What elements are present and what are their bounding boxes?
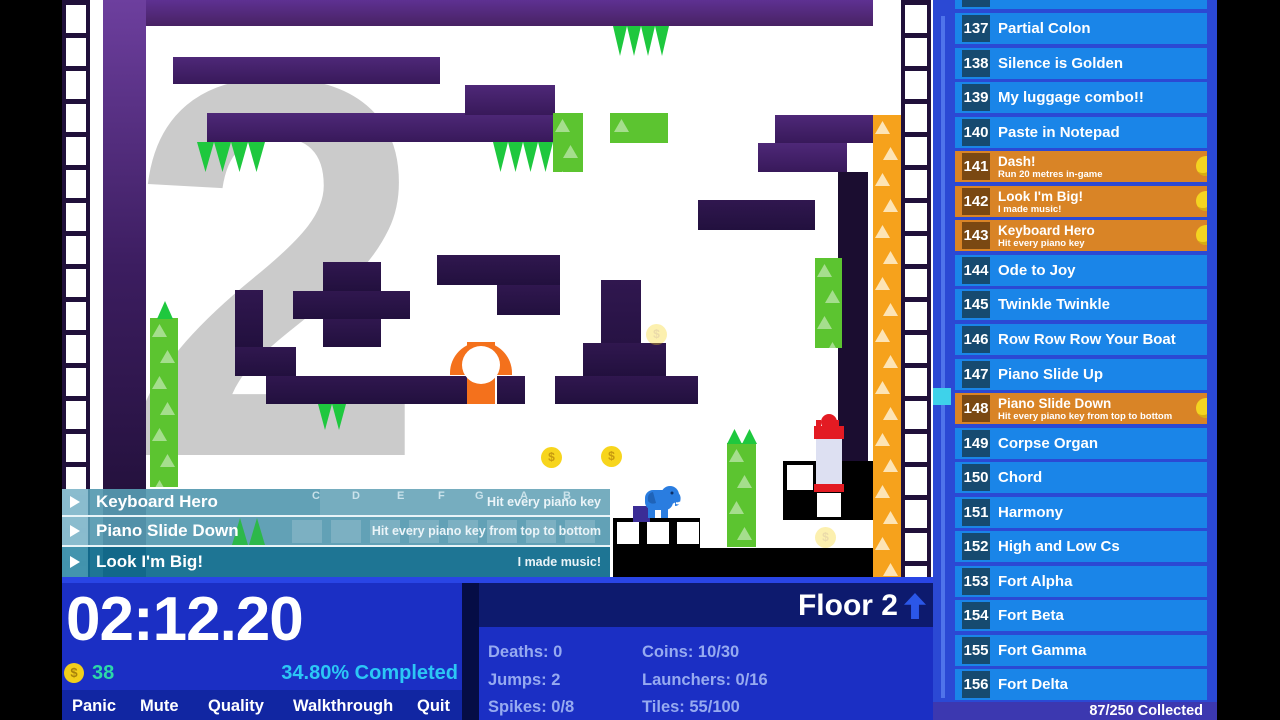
achievement-row-137[interactable]: 137Partial Colon — [955, 13, 1207, 44]
green-column — [815, 258, 842, 348]
platform — [583, 343, 666, 376]
pattern-triangle — [883, 563, 898, 576]
achievement-number: 153 — [962, 568, 990, 595]
menu-walkthrough[interactable]: Walkthrough — [293, 697, 393, 716]
decor: Row Row Row Your Boat — [998, 324, 1193, 355]
coin: $ — [815, 527, 836, 548]
stat-jumps: Jumps: 2 — [488, 671, 560, 690]
pattern-triangle — [875, 121, 890, 134]
achievement-number: 142 — [962, 188, 990, 215]
achievement-row-153[interactable]: 153Fort Alpha — [955, 566, 1207, 597]
play-icon — [70, 525, 80, 537]
pattern-triangle — [875, 173, 890, 186]
pattern-triangle — [875, 537, 890, 550]
pattern-triangle — [883, 147, 898, 160]
achievement-title: Harmony — [998, 497, 1193, 528]
launcher-body — [816, 439, 842, 486]
tile — [677, 522, 699, 544]
toast-look-im-big: Look I'm Big! I made music! — [62, 547, 610, 577]
tile — [647, 522, 669, 544]
launcher-cap — [814, 426, 844, 439]
pattern-triangle — [160, 350, 175, 363]
platform — [838, 172, 868, 461]
completion-percent: 34.80% Completed — [180, 662, 458, 685]
pattern-triangle — [883, 199, 898, 212]
achievement-title: Piano Slide Up — [998, 359, 1193, 390]
achievement-number: 141 — [962, 153, 990, 180]
achievement-title: Corpse Organ — [998, 428, 1193, 459]
piano-letter: C — [312, 490, 320, 502]
platform — [437, 255, 560, 285]
decor: Piano Slide DownHit every piano key from… — [998, 393, 1193, 424]
achievement-number: 148 — [962, 395, 990, 422]
achievement-row-154[interactable]: 154Fort Beta — [955, 600, 1207, 631]
decor — [331, 520, 361, 543]
piano-letter: D — [352, 490, 360, 502]
green-column — [727, 443, 756, 547]
pattern-triangle — [555, 171, 570, 172]
floor — [613, 548, 873, 578]
achievement-number: 145 — [962, 291, 990, 318]
toast-icon-box — [62, 489, 88, 515]
menu-mute[interactable]: Mute — [140, 697, 179, 716]
piano-letter: B — [563, 490, 571, 502]
achievement-title: Fort Gamma — [998, 635, 1193, 666]
decor — [661, 506, 668, 518]
pattern-triangle — [875, 225, 890, 238]
pattern-triangle — [555, 119, 570, 132]
achievement-row-145[interactable]: 145Twinkle Twinkle — [955, 289, 1207, 320]
achievement-subtitle: Run 20 metres in-game — [998, 170, 1193, 180]
achievement-subtitle: Hit every piano key from top to bottom — [998, 412, 1193, 422]
achievement-number: 150 — [962, 464, 990, 491]
decor: Fort Beta — [998, 600, 1193, 631]
achievement-number: 156 — [962, 671, 990, 698]
platform — [173, 57, 440, 84]
achievement-row-155[interactable]: 155Fort Gamma — [955, 635, 1207, 666]
orange-column — [873, 115, 901, 578]
decor — [671, 492, 674, 495]
pattern-triangle — [152, 376, 167, 389]
pattern-triangle — [152, 324, 167, 337]
tile — [617, 522, 639, 544]
play-icon — [70, 496, 80, 508]
achievement-title: Row Row Row Your Boat — [998, 324, 1193, 355]
piano-letter: A — [520, 490, 528, 502]
achievement-number: 151 — [962, 499, 990, 526]
achievement-title: Ode to Joy — [998, 255, 1193, 286]
film-strip-right — [901, 0, 931, 578]
stat-launchers: Launchers: 0/16 — [642, 671, 768, 690]
coin: $ — [541, 447, 562, 468]
achievement-row-141[interactable]: 141Dash!Run 20 metres in-game — [955, 151, 1207, 182]
platform — [235, 290, 263, 347]
achievement-title: Dash! — [998, 151, 1193, 170]
platform — [293, 291, 410, 319]
pattern-triangle — [883, 459, 898, 472]
pattern-triangle — [563, 145, 578, 158]
coin: $ — [601, 446, 622, 467]
achievement-title: Chord — [998, 462, 1193, 493]
platform — [323, 319, 381, 347]
green-block — [610, 113, 668, 143]
platform — [465, 85, 555, 115]
pattern-triangle — [737, 527, 752, 540]
game-screen: 2 — [0, 0, 1280, 720]
achievement-number: 147 — [962, 361, 990, 388]
toast-icon-box — [62, 547, 88, 577]
elephant — [641, 484, 685, 520]
pattern-triangle — [875, 433, 890, 446]
stat-coins: Coins: 10/30 — [642, 643, 739, 662]
achievement-row-150[interactable]: 150Chord — [955, 462, 1207, 493]
achievement-title: High and Low Cs — [998, 531, 1193, 562]
achievement-number: 154 — [962, 602, 990, 629]
achievement-number: 137 — [962, 15, 990, 42]
pattern-triangle — [883, 355, 898, 368]
coin-icon — [1196, 398, 1207, 418]
achievement-number: 144 — [962, 257, 990, 284]
toast-title: Look I'm Big! — [96, 547, 203, 577]
achievement-row-146[interactable]: 146Row Row Row Your Boat — [955, 324, 1207, 355]
stat-tiles: Tiles: 55/100 — [642, 698, 740, 717]
pattern-triangle — [875, 381, 890, 394]
achievement-row-148[interactable]: 148Piano Slide DownHit every piano key f… — [955, 393, 1207, 424]
achievement-title: Look I'm Big! — [998, 186, 1193, 205]
achievement-number: 149 — [962, 430, 990, 457]
shrine-hole — [462, 346, 500, 384]
coin-icon: $ — [64, 663, 84, 683]
decor: Corpse Organ — [998, 428, 1193, 459]
achievement-row-147[interactable]: 147Piano Slide Up — [955, 359, 1207, 390]
piano-letter: G — [475, 490, 484, 502]
toast-piano-slide-down: Piano Slide Down Hit every piano key fro… — [62, 517, 610, 547]
green-block — [553, 113, 583, 172]
toast-note: I made music! — [518, 547, 601, 577]
achievement-number: 140 — [962, 119, 990, 146]
pattern-triangle — [883, 251, 898, 264]
left-letterbox — [0, 0, 62, 720]
decor: Ode to Joy — [998, 255, 1193, 286]
achievement-number: 138 — [962, 50, 990, 77]
pattern-triangle — [875, 277, 890, 290]
sidebar-scrollbar[interactable] — [941, 16, 945, 698]
pattern-triangle — [160, 402, 175, 415]
coin: $ — [646, 324, 667, 345]
platform — [207, 113, 555, 142]
menu-quit[interactable]: Quit — [417, 697, 450, 716]
achievement-row-144[interactable]: 144Ode to Joy — [955, 255, 1207, 286]
menu-quality[interactable]: Quality — [208, 697, 264, 716]
achievement-row-151[interactable]: 151Harmony — [955, 497, 1207, 528]
tile — [787, 465, 813, 490]
pattern-triangle — [160, 454, 175, 467]
platform — [555, 376, 698, 404]
pattern-triangle — [152, 480, 167, 487]
pattern-triangle — [883, 511, 898, 524]
decor: Fort Delta — [998, 669, 1193, 700]
achievement-row-partial[interactable] — [955, 0, 1207, 9]
pattern-triangle — [875, 329, 890, 342]
achievement-title: My luggage combo!! — [998, 82, 1193, 113]
decor — [648, 506, 655, 518]
pattern-triangle — [883, 407, 898, 420]
pattern-triangle — [152, 428, 167, 441]
decor: Paste in Notepad — [998, 117, 1193, 148]
right-letterbox — [1217, 0, 1280, 720]
toast-title: Piano Slide Down — [96, 517, 239, 545]
achievement-row-149[interactable]: 149Corpse Organ — [955, 428, 1207, 459]
stat-deaths: Deaths: 0 — [488, 643, 562, 662]
achievement-title: Fort Delta — [998, 669, 1193, 700]
achievement-title: Keyboard Hero — [998, 220, 1193, 239]
achievement-row-156[interactable]: 156Fort Delta — [955, 669, 1207, 700]
decor: Piano Slide Up — [998, 359, 1193, 390]
stat-spikes: Spikes: 0/8 — [488, 698, 574, 717]
achievement-row-140[interactable]: 140Paste in Notepad — [955, 117, 1207, 148]
toast-keyboard-hero: Keyboard Hero Hit every piano key CDEFGA… — [62, 489, 610, 517]
piano-letter: F — [438, 490, 445, 502]
decor: Silence is Golden — [998, 48, 1193, 79]
toast-icon-box — [62, 517, 88, 545]
decor: My luggage combo!! — [998, 82, 1193, 113]
decor — [962, 0, 990, 7]
decor — [292, 520, 322, 543]
scroll-marker[interactable] — [933, 388, 951, 405]
achievement-number: 143 — [962, 222, 990, 249]
decor: Fort Alpha — [998, 566, 1193, 597]
decor: Fort Gamma — [998, 635, 1193, 666]
menu-panic[interactable]: Panic — [72, 697, 116, 716]
coin-icon — [1196, 225, 1207, 245]
achievement-title: Partial Colon — [998, 13, 1193, 44]
decor: Dash!Run 20 metres in-game — [998, 151, 1193, 182]
floor-label: Floor 2 — [640, 589, 898, 623]
coin-count: 38 — [92, 662, 114, 685]
pattern-triangle — [729, 449, 744, 462]
coin-icon — [1196, 156, 1207, 176]
achievement-title: Fort Beta — [998, 600, 1193, 631]
tile — [817, 493, 841, 517]
pattern-triangle — [875, 485, 890, 498]
achievement-subtitle: I made music! — [998, 205, 1193, 215]
pattern-triangle — [883, 303, 898, 316]
achievement-number: 146 — [962, 326, 990, 353]
decor: Twinkle Twinkle — [998, 289, 1193, 320]
platform — [266, 376, 448, 404]
decor: High and Low Cs — [998, 531, 1193, 562]
achievement-row-139[interactable]: 139My luggage combo!! — [955, 82, 1207, 113]
platform — [497, 376, 525, 404]
green-column — [150, 318, 178, 487]
achievement-title: Twinkle Twinkle — [998, 289, 1193, 320]
pattern-triangle — [825, 342, 840, 348]
decor: Partial Colon — [998, 13, 1193, 44]
platform — [758, 143, 847, 172]
achievement-number: 155 — [962, 637, 990, 664]
pattern-triangle — [729, 501, 744, 514]
achievement-list: 137Partial Colon138Silence is Golden139M… — [955, 0, 1207, 702]
pattern-triangle — [817, 316, 832, 329]
decor — [462, 583, 479, 720]
piano-letter: E — [397, 490, 404, 502]
platform — [235, 347, 296, 376]
pattern-triangle — [737, 475, 752, 488]
play-icon — [70, 556, 80, 568]
achievement-number: 152 — [962, 533, 990, 560]
platform — [698, 200, 815, 230]
pattern-triangle — [817, 264, 832, 277]
coin-icon — [1196, 191, 1207, 211]
spike — [249, 518, 265, 545]
speedrun-timer: 02:12.20 — [66, 584, 303, 655]
platform — [775, 115, 873, 143]
achievement-row-142[interactable]: 142Look I'm Big!I made music! — [955, 186, 1207, 217]
achievement-title: Fort Alpha — [998, 566, 1193, 597]
achievement-subtitle: Hit every piano key — [998, 239, 1193, 249]
achievement-title: Piano Slide Down — [998, 393, 1193, 412]
toast-note: Hit every piano key from top to bottom — [372, 517, 601, 545]
platform — [323, 262, 381, 291]
platform — [103, 0, 873, 26]
pattern-triangle — [614, 119, 629, 132]
launcher-base — [814, 484, 844, 492]
collection-counter: 87/250 Collected — [933, 702, 1217, 720]
decor: Harmony — [998, 497, 1193, 528]
achievement-number: 139 — [962, 84, 990, 111]
pattern-triangle — [825, 290, 840, 303]
achievement-row-143[interactable]: 143Keyboard HeroHit every piano key — [955, 220, 1207, 251]
platform — [497, 285, 560, 315]
achievement-row-152[interactable]: 152High and Low Cs — [955, 531, 1207, 562]
toast-note: Hit every piano key — [487, 489, 601, 515]
toast-title: Keyboard Hero — [96, 489, 218, 515]
decor: Keyboard HeroHit every piano key — [998, 220, 1193, 251]
decor: Chord — [998, 462, 1193, 493]
decor: Look I'm Big!I made music! — [998, 186, 1193, 217]
achievement-row-138[interactable]: 138Silence is Golden — [955, 48, 1207, 79]
achievement-title: Silence is Golden — [998, 48, 1193, 79]
platform — [437, 376, 467, 404]
achievement-title: Paste in Notepad — [998, 117, 1193, 148]
